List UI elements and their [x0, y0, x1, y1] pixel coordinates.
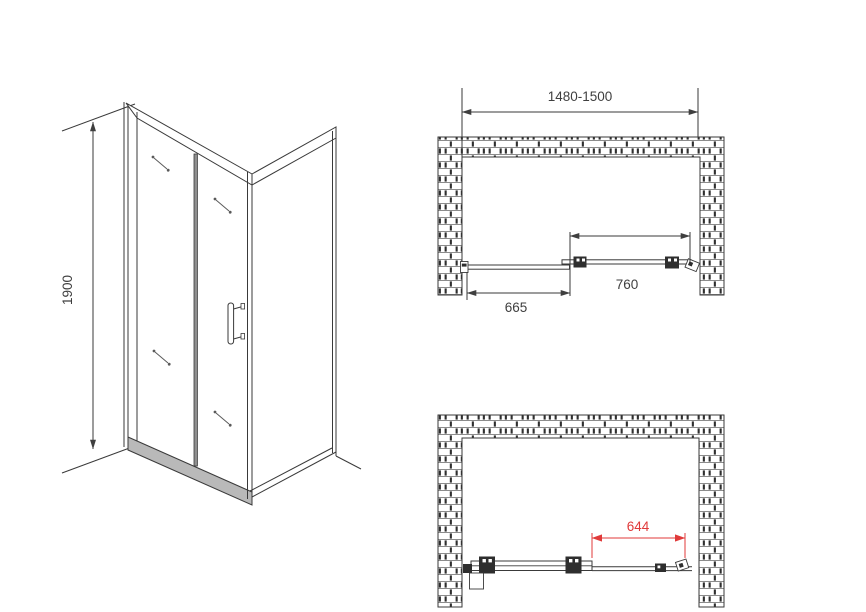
roller-carriage-left	[479, 557, 495, 574]
shine-mark	[152, 156, 169, 171]
fixed-panel-label: 665	[505, 300, 528, 315]
wall-bracket-angled	[675, 559, 688, 571]
side-panel	[250, 127, 361, 497]
stopper-bolt	[658, 566, 661, 569]
wall-bracket-angled	[685, 259, 699, 272]
side-panel-bottom-edge-inner	[250, 448, 332, 491]
technical-drawing: 1900 1480-1500	[0, 0, 866, 612]
fixed-panel-plan	[461, 262, 570, 273]
opening-dimension: 644	[592, 519, 685, 558]
sliding-door-edge-profile	[194, 154, 197, 466]
handle-bar	[228, 303, 234, 344]
roller-carriage-right	[566, 557, 582, 574]
overall-width-label: 1480-1500	[548, 89, 613, 104]
roller-carriage-right	[665, 257, 679, 269]
drawing-svg: 1900 1480-1500	[0, 0, 866, 612]
sliding-door-plan	[562, 257, 700, 272]
brick-wall-closed-view	[438, 137, 724, 295]
wall-clamp	[463, 564, 472, 573]
handle-pad-top	[241, 304, 245, 310]
sliding-door-open	[463, 557, 592, 590]
floor-guide	[470, 573, 484, 589]
roller-carriage-left	[574, 257, 587, 268]
clamp-bolt	[462, 264, 467, 267]
door-handle	[228, 303, 245, 344]
roller-bolt	[569, 559, 572, 562]
roller-bolt	[489, 559, 492, 562]
roller-bolt	[674, 259, 677, 262]
side-panel-bottom-edge	[252, 452, 336, 497]
side-panel-top-rail	[252, 127, 336, 185]
handle-pad-bottom	[241, 334, 245, 340]
rail-stopper	[655, 564, 666, 573]
shine-mark	[214, 198, 231, 213]
roller-bolt	[577, 259, 580, 262]
fixed-panel-dimension: 665	[467, 272, 570, 315]
door-width-label: 760	[616, 277, 639, 292]
roller-bolt	[582, 259, 585, 262]
roller-bolt	[575, 559, 578, 562]
glass-shine-marks	[152, 156, 231, 426]
roller-bolt	[483, 559, 486, 562]
top-rail	[126, 103, 252, 185]
floor-line	[336, 456, 361, 469]
shine-mark	[214, 411, 231, 426]
shine-mark	[153, 350, 170, 365]
plan-view-closed: 1480-1500 760	[438, 88, 724, 315]
plan-view-open: 644	[438, 415, 724, 607]
opening-width-label: 644	[627, 519, 650, 534]
height-dimension-label: 1900	[60, 275, 75, 305]
isometric-view: 1900	[60, 102, 361, 505]
wall-profile-clamp	[461, 262, 469, 273]
bottom-rail	[128, 437, 252, 505]
fixed-panel-glass	[463, 265, 570, 269]
top-rail-plan	[592, 559, 692, 572]
dim-witness-bottom	[62, 446, 135, 473]
roller-bolt	[668, 259, 671, 262]
